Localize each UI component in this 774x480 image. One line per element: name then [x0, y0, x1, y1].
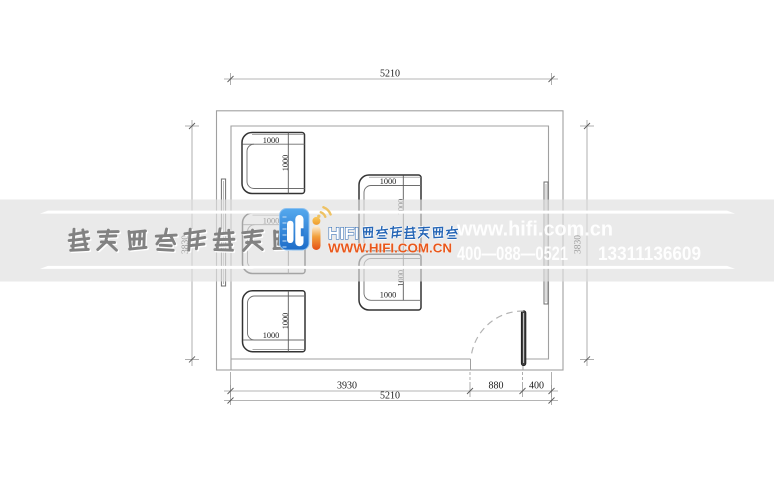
svg-text:1000: 1000 — [263, 331, 280, 340]
svg-text:www.hifi.com.cn: www.hifi.com.cn — [456, 218, 613, 240]
svg-text:1000: 1000 — [281, 313, 290, 330]
svg-text:400: 400 — [529, 381, 544, 392]
svg-text:WWW.HIFI.COM.CN: WWW.HIFI.COM.CN — [328, 240, 452, 255]
svg-text:880: 880 — [489, 381, 504, 392]
svg-text:1000: 1000 — [380, 177, 397, 186]
svg-text:5210: 5210 — [380, 390, 400, 401]
svg-text:1000: 1000 — [263, 136, 280, 145]
svg-text:3930: 3930 — [337, 381, 357, 392]
svg-text:13311136609: 13311136609 — [598, 244, 701, 265]
svg-text:1000: 1000 — [380, 291, 397, 300]
svg-text:5210: 5210 — [380, 69, 400, 80]
svg-text:400—088—0521: 400—088—0521 — [457, 244, 568, 265]
svg-text:1000: 1000 — [281, 155, 290, 172]
